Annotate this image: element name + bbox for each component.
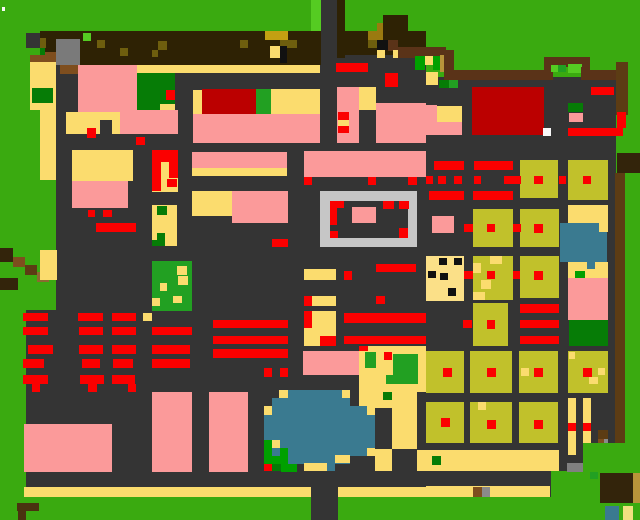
lake xyxy=(264,406,375,448)
map-block xyxy=(426,72,438,85)
north-road xyxy=(321,0,337,33)
map-block xyxy=(437,122,462,135)
map-block xyxy=(598,368,605,375)
map-block xyxy=(617,153,640,173)
map-block xyxy=(264,440,272,448)
map-block xyxy=(392,408,417,449)
map-block xyxy=(399,201,409,209)
map-block xyxy=(304,177,312,185)
map-block xyxy=(464,271,473,279)
map-block xyxy=(432,456,441,465)
north-sidewalk xyxy=(137,65,320,73)
map-block xyxy=(167,179,177,187)
map-block xyxy=(425,56,433,65)
map-block xyxy=(304,311,312,328)
map-block xyxy=(623,506,633,520)
map-block xyxy=(152,345,190,354)
map-block xyxy=(25,265,37,275)
map-block xyxy=(482,487,490,497)
map-block xyxy=(377,50,385,58)
map-block xyxy=(23,359,44,368)
map-block xyxy=(408,177,417,185)
map-block xyxy=(304,151,426,177)
map-block xyxy=(152,359,190,368)
map-block xyxy=(256,89,271,116)
map-block xyxy=(28,345,53,354)
map-block xyxy=(178,276,188,285)
map-block xyxy=(454,176,462,184)
map-block xyxy=(591,87,614,95)
map-block xyxy=(112,313,136,321)
map-block xyxy=(103,210,112,217)
map-block xyxy=(192,168,287,176)
map-block xyxy=(368,31,383,40)
map-block xyxy=(558,65,566,72)
map-block xyxy=(439,258,447,265)
map-block xyxy=(100,120,112,138)
map-block xyxy=(40,110,56,180)
map-block xyxy=(534,368,543,377)
map-block xyxy=(330,201,337,225)
map-block xyxy=(30,55,56,62)
map-block xyxy=(40,250,57,280)
map-block xyxy=(429,191,464,200)
south-sidewalk-east xyxy=(338,487,426,497)
map-block xyxy=(338,112,349,120)
map-block xyxy=(569,352,575,359)
map-block xyxy=(520,320,559,328)
map-block xyxy=(173,296,182,303)
map-block xyxy=(481,280,491,289)
map-block xyxy=(72,150,133,181)
map-block xyxy=(385,73,398,87)
map-block xyxy=(583,368,592,377)
map-block xyxy=(583,423,591,431)
map-block xyxy=(82,359,100,368)
map-block xyxy=(13,257,25,267)
map-block xyxy=(271,89,320,116)
map-block xyxy=(520,304,559,313)
map-block xyxy=(264,464,272,471)
map-block xyxy=(0,248,13,262)
map-block xyxy=(344,336,426,344)
map-block xyxy=(97,40,105,48)
map-block xyxy=(473,487,482,497)
map-block xyxy=(384,352,392,360)
map-block xyxy=(40,38,46,48)
map-block xyxy=(441,418,450,427)
map-block xyxy=(18,503,26,520)
map-block xyxy=(158,41,167,50)
map-block xyxy=(616,62,628,115)
map-block xyxy=(376,103,426,143)
map-block xyxy=(599,223,608,232)
south-sidewalk-west xyxy=(24,487,311,497)
map-block xyxy=(383,201,394,209)
map-block xyxy=(72,181,128,208)
map-block xyxy=(443,368,452,377)
wall-blob xyxy=(383,15,408,40)
map-block xyxy=(568,64,582,73)
gray-gate xyxy=(56,39,80,65)
map-block xyxy=(368,40,377,48)
map-block xyxy=(437,106,462,122)
light-grass-stripe xyxy=(311,0,321,33)
map-block xyxy=(312,296,336,306)
map-block xyxy=(152,50,158,57)
map-block xyxy=(272,440,280,448)
map-block xyxy=(454,258,462,265)
map-block xyxy=(359,87,376,110)
map-block xyxy=(473,263,481,273)
map-block xyxy=(393,354,418,384)
red-building-ne xyxy=(472,87,544,135)
lake xyxy=(272,398,350,406)
map-block xyxy=(330,231,338,238)
map-block xyxy=(375,449,392,471)
lake xyxy=(288,390,342,398)
map-block xyxy=(359,346,368,351)
map-block xyxy=(264,368,272,377)
map-block xyxy=(377,40,388,50)
map-block xyxy=(449,80,458,88)
map-block xyxy=(342,390,350,398)
map-block xyxy=(304,463,327,471)
map-block xyxy=(448,288,456,296)
map-block xyxy=(513,224,521,232)
south-water xyxy=(605,506,619,520)
map-block xyxy=(96,223,136,232)
map-block xyxy=(487,271,495,279)
map-block xyxy=(568,278,608,320)
map-block xyxy=(143,313,152,321)
map-block xyxy=(383,392,392,400)
map-block xyxy=(487,420,496,429)
map-block xyxy=(568,423,576,431)
map-block xyxy=(88,210,95,217)
map-block xyxy=(32,384,40,392)
map-block xyxy=(272,239,288,247)
map-block xyxy=(474,161,513,170)
map-block xyxy=(463,320,472,328)
map-block xyxy=(128,384,136,392)
map-block xyxy=(520,336,559,344)
map-block xyxy=(568,128,623,136)
map-block xyxy=(335,455,350,463)
map-block xyxy=(426,176,433,184)
map-block xyxy=(386,375,393,384)
map-block xyxy=(344,313,426,323)
map-block xyxy=(633,473,640,503)
map-block xyxy=(568,205,608,225)
map-block xyxy=(80,375,104,384)
map-block xyxy=(112,345,136,354)
map-block xyxy=(473,191,513,200)
map-block xyxy=(377,23,383,31)
map-block xyxy=(365,352,376,368)
map-block xyxy=(272,464,281,471)
brown-path xyxy=(444,70,544,80)
map-block xyxy=(304,296,312,306)
map-block xyxy=(78,313,103,321)
map-block xyxy=(415,56,425,70)
map-block xyxy=(487,224,495,232)
map-block xyxy=(213,320,288,328)
map-block xyxy=(270,46,280,58)
map-block xyxy=(568,103,583,112)
lake xyxy=(327,464,335,471)
map-block xyxy=(428,271,436,278)
map-block xyxy=(551,65,558,72)
map-block xyxy=(193,114,320,143)
map-block xyxy=(367,406,375,415)
map-block xyxy=(192,191,232,216)
map-block xyxy=(169,150,178,178)
map-dot xyxy=(2,7,5,11)
map-block xyxy=(113,359,133,368)
map-block xyxy=(152,150,161,191)
map-block xyxy=(464,224,473,232)
map-block xyxy=(87,128,96,138)
map-block xyxy=(120,48,128,56)
map-block xyxy=(152,298,160,306)
map-block xyxy=(152,392,192,472)
map-block xyxy=(166,90,175,100)
south-road xyxy=(311,476,338,520)
pink-building-nw xyxy=(78,65,137,112)
map-block xyxy=(177,266,187,275)
map-block xyxy=(559,176,566,184)
pink-building-sw xyxy=(24,424,112,472)
map-block xyxy=(521,368,529,376)
map-block xyxy=(281,464,297,472)
map-block xyxy=(376,264,416,272)
map-block xyxy=(434,161,464,170)
west-green-blob xyxy=(32,88,53,103)
map-block xyxy=(590,472,598,479)
map-block xyxy=(213,336,288,344)
map-block xyxy=(551,471,583,497)
map-block xyxy=(240,40,248,48)
map-canvas[interactable] xyxy=(0,0,640,520)
map-block xyxy=(83,33,91,41)
map-block xyxy=(336,63,368,72)
map-block xyxy=(439,80,449,88)
map-block xyxy=(272,448,280,456)
map-block xyxy=(440,273,448,280)
map-block xyxy=(213,349,288,358)
map-block xyxy=(352,207,376,223)
map-block xyxy=(368,177,376,185)
map-block xyxy=(112,327,136,335)
map-block xyxy=(232,191,288,223)
map-block xyxy=(193,90,202,114)
map-block xyxy=(209,392,248,472)
map-block xyxy=(303,351,359,375)
map-block xyxy=(79,345,103,354)
map-block xyxy=(265,31,288,40)
map-block xyxy=(534,420,543,429)
map-block xyxy=(534,271,543,280)
map-block xyxy=(157,206,167,215)
map-block xyxy=(589,377,598,384)
map-block xyxy=(192,152,287,168)
map-block xyxy=(399,228,408,238)
red-building-north xyxy=(202,89,256,116)
map-block xyxy=(543,128,551,136)
map-block xyxy=(120,110,178,134)
map-block xyxy=(23,327,48,335)
map-block xyxy=(617,112,626,128)
map-block xyxy=(264,406,272,415)
map-block xyxy=(569,320,608,346)
map-block xyxy=(0,278,18,290)
gray-stub xyxy=(567,463,583,472)
map-block xyxy=(583,176,591,184)
map-block xyxy=(23,375,48,384)
map-block xyxy=(152,240,165,246)
map-block xyxy=(320,336,336,346)
map-block xyxy=(478,402,486,410)
map-block xyxy=(587,262,595,269)
map-block xyxy=(534,176,543,184)
map-block xyxy=(160,283,167,291)
map-block xyxy=(438,176,446,184)
map-block xyxy=(487,320,495,329)
map-block xyxy=(338,126,349,133)
map-block xyxy=(279,390,288,398)
map-block xyxy=(112,375,135,384)
map-block xyxy=(152,327,192,335)
map-block xyxy=(504,176,521,184)
map-block xyxy=(569,113,583,122)
map-block xyxy=(426,105,437,135)
screenshot-stage xyxy=(0,0,640,520)
map-block xyxy=(598,430,608,439)
map-block xyxy=(487,368,496,377)
map-block xyxy=(367,448,375,456)
map-block xyxy=(490,256,502,264)
map-block xyxy=(473,292,485,300)
dark-brown-building xyxy=(600,473,633,503)
map-block xyxy=(417,392,426,408)
east-brown-column xyxy=(615,173,625,443)
map-block xyxy=(23,313,48,321)
map-block xyxy=(432,216,454,233)
map-block xyxy=(88,384,97,392)
map-block xyxy=(304,269,336,280)
map-block xyxy=(344,271,352,280)
map-block xyxy=(79,327,103,335)
map-block xyxy=(280,368,288,377)
map-block xyxy=(136,137,145,145)
map-block xyxy=(60,65,78,74)
map-block xyxy=(280,46,287,63)
map-block xyxy=(474,176,481,184)
map-block xyxy=(376,296,385,304)
map-block xyxy=(534,224,543,233)
